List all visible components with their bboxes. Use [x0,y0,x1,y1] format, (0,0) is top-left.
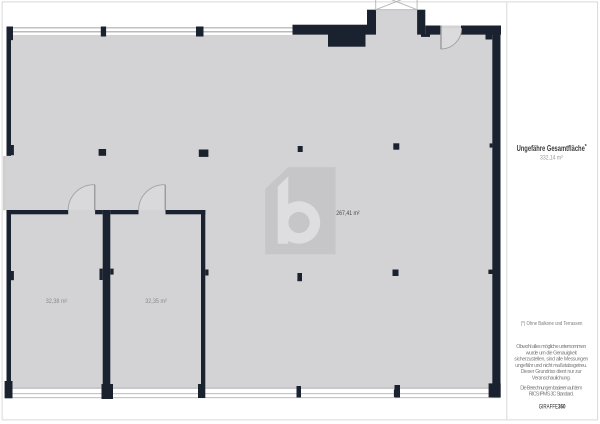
svg-text:RICS IPMS 3C Standard.: RICS IPMS 3C Standard. [529,391,574,397]
svg-text:332,14 m²: 332,14 m² [540,156,563,162]
svg-text:32,35 m²: 32,35 m² [145,299,167,305]
svg-text:267,41 m²: 267,41 m² [336,210,359,217]
svg-text:Veranschaulichung.: Veranschaulichung. [532,376,571,382]
svg-text:32,38 m²: 32,38 m² [46,299,68,305]
svg-text:Ungefähre Gesamtfläche: Ungefähre Gesamtfläche [517,144,586,153]
svg-text:wurde um die Genauigkeit: wurde um die Genauigkeit [526,350,578,356]
svg-text:sicherzustellen, sind alle Mes: sicherzustellen, sind alle Messungen [514,357,588,363]
svg-text:Obwohl alles mögliche unternom: Obwohl alles mögliche unternommen [516,344,586,350]
svg-text:ungefähr und nicht maßstabsget: ungefähr und nicht maßstabsgetreu. [515,363,587,369]
svg-text:(*) Ohne Balkone und Terrassen: (*) Ohne Balkone und Terrassen [521,321,583,327]
svg-text:Dieser Grundriss dient nur zur: Dieser Grundriss dient nur zur [521,369,582,375]
svg-text:GIRAFFE360: GIRAFFE360 [539,403,566,410]
